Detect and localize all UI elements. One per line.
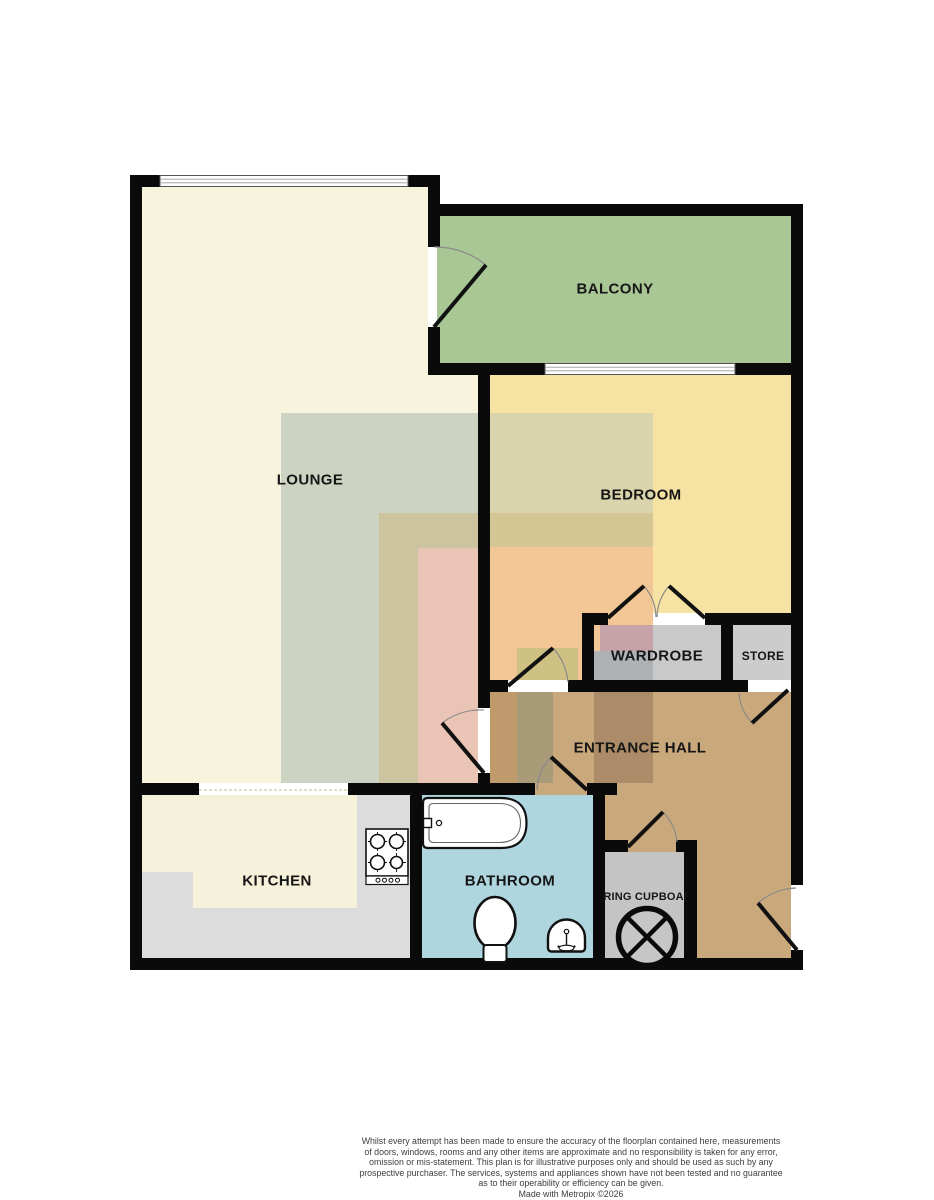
floorplan-page: { "plan": { "rooms": { "lounge": {"label… [0,0,934,1200]
shading-rect [517,692,553,783]
shading-rect [418,548,478,783]
room-label-entrance-hall: ENTRANCE HALL [574,740,707,757]
wall [593,783,605,970]
wall [478,773,490,795]
room-label-store: STORE [742,649,785,663]
wall [428,204,803,216]
wall [721,613,733,692]
shading-rect [142,795,357,872]
floorplan-drawing [0,0,934,1200]
wall [348,783,535,795]
room-label-bathroom: BATHROOM [465,873,555,890]
shading-rect [490,513,653,547]
room-label-lounge: LOUNGE [277,472,344,489]
wall [478,363,490,708]
room-label-bedroom: BEDROOM [600,487,681,504]
window [160,176,408,187]
wall [410,783,422,970]
wall [130,175,142,970]
wall [428,175,440,247]
room-label-kitchen: KITCHEN [242,873,311,890]
metropix-credit: Made with Metropix ©2026 [271,1189,871,1200]
wall [791,204,803,885]
wall [705,613,803,625]
hob-icon [366,829,408,885]
wall [791,950,803,970]
floorplan-disclaimer: Whilst every attempt has been made to en… [271,1136,871,1189]
room-label-airing-cupboard: AIRING CUPBOARD [604,889,688,904]
room-label-wardrobe: WARDROBE [611,648,703,665]
wall [582,613,594,692]
hot-water-cylinder-icon [619,909,676,966]
bath-tap-icon [424,819,432,828]
sink-icon [548,920,585,952]
wall [428,327,440,375]
wall [130,958,803,970]
airing-cupboard-label-text: AIRING CUPBOARD [604,891,688,903]
room-label-balcony: BALCONY [577,281,654,298]
wall [684,840,697,970]
window [545,364,735,375]
shading-rect [490,692,517,783]
footer: Whilst every attempt has been made to en… [271,1136,871,1199]
shading-rect [594,692,653,783]
bathtub-icon [423,798,527,848]
